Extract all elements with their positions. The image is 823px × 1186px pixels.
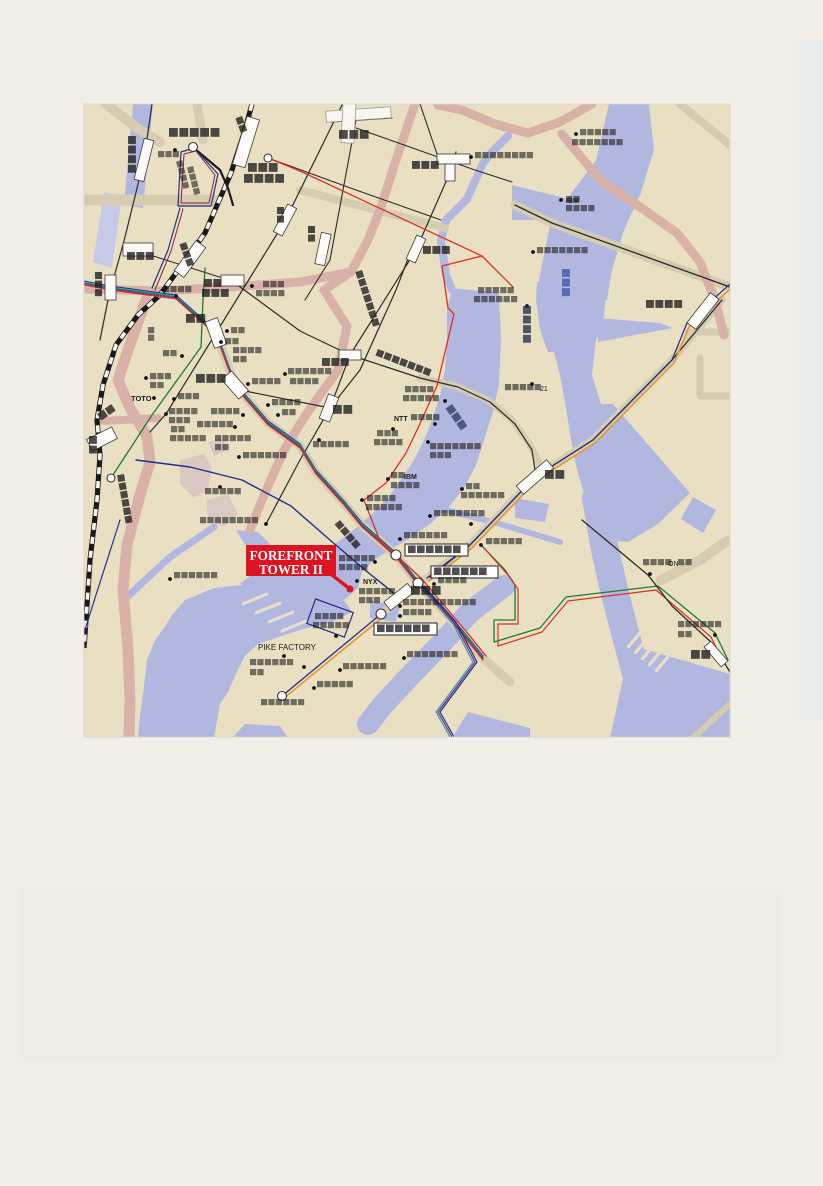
svg-text:ON: ON [668,561,679,568]
svg-text:TOWER II: TOWER II [259,562,323,577]
svg-text:NYX: NYX [363,579,378,586]
svg-text:PIKE FACTORY: PIKE FACTORY [258,643,317,652]
svg-text:TOTO: TOTO [131,394,152,403]
svg-text:FOREFRONT: FOREFRONT [250,548,333,563]
svg-text:21: 21 [540,386,548,393]
svg-text:NTT: NTT [394,416,408,423]
svg-text:IBM: IBM [404,474,417,481]
